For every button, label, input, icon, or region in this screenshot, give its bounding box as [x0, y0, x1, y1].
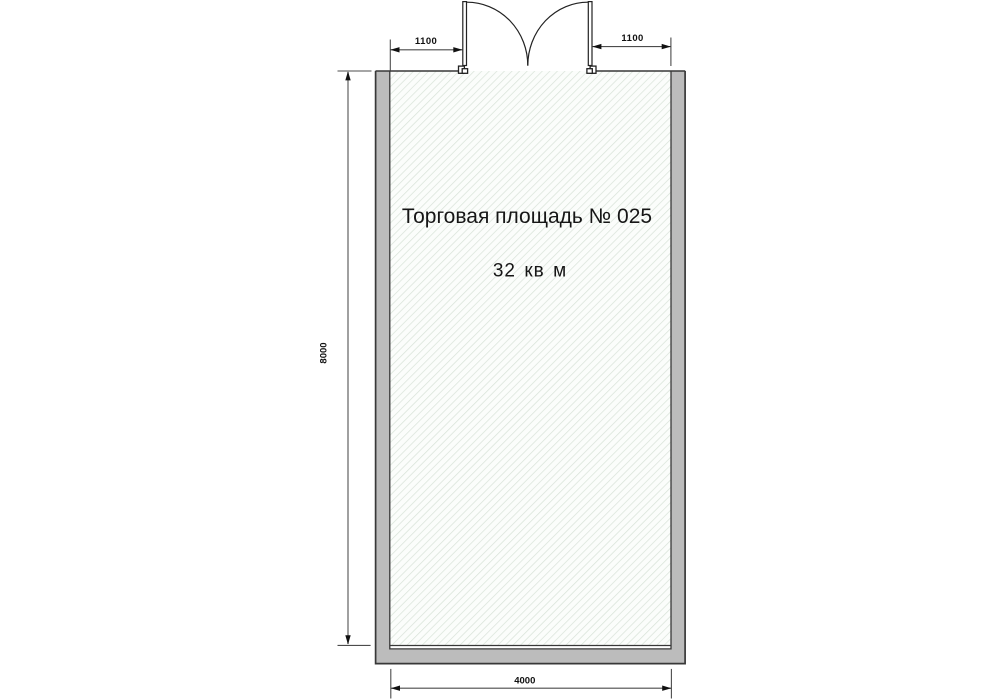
svg-text:32 кв м: 32 кв м: [493, 260, 567, 281]
svg-text:8000: 8000: [319, 342, 330, 363]
svg-text:Торговая площадь № 025: Торговая площадь № 025: [402, 205, 652, 228]
svg-text:1100: 1100: [621, 33, 643, 44]
svg-text:1100: 1100: [415, 36, 437, 47]
svg-text:4000: 4000: [514, 676, 535, 687]
